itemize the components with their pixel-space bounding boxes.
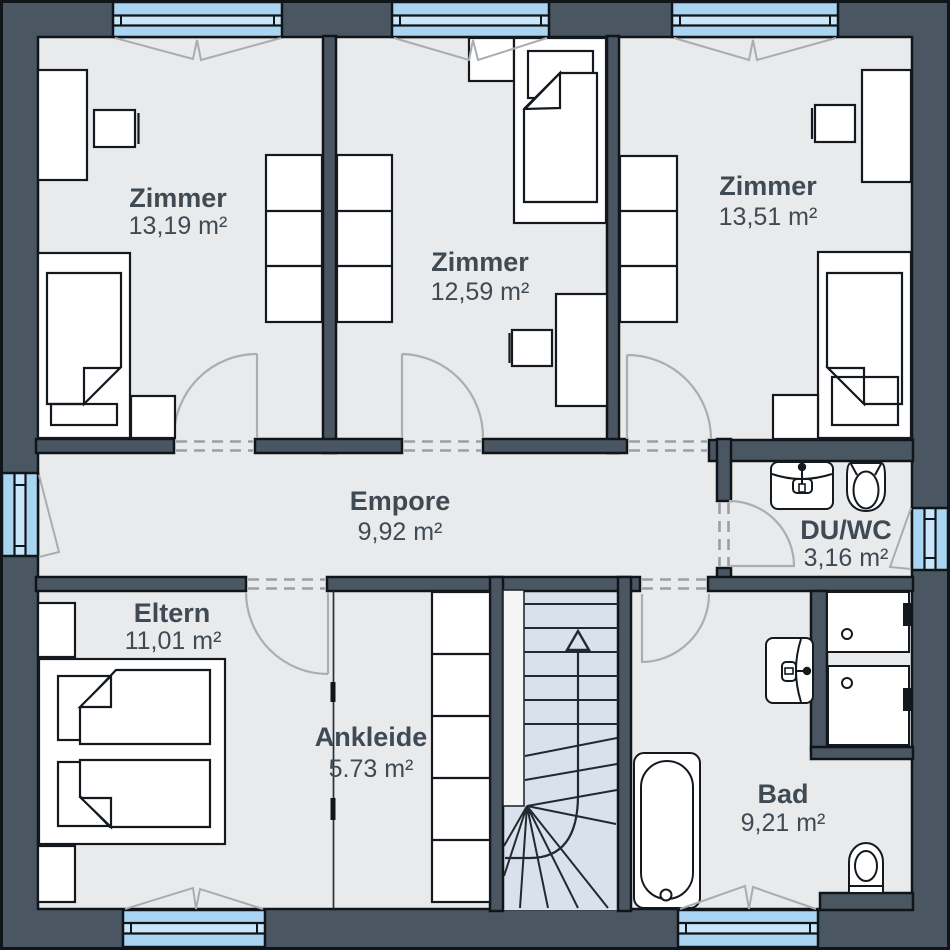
svg-text:13,19 m²: 13,19 m² <box>129 212 228 240</box>
svg-text:3,16 m²: 3,16 m² <box>804 544 889 572</box>
svg-text:Eltern: Eltern <box>134 598 211 628</box>
svg-text:11,01 m²: 11,01 m² <box>125 627 222 655</box>
svg-text:Empore: Empore <box>350 486 451 516</box>
svg-text:12,59 m²: 12,59 m² <box>431 278 530 306</box>
svg-text:Ankleide: Ankleide <box>315 722 428 752</box>
svg-text:13,51 m²: 13,51 m² <box>719 203 818 231</box>
svg-text:Zimmer: Zimmer <box>431 247 529 277</box>
svg-text:Zimmer: Zimmer <box>719 171 817 201</box>
svg-text:Bad: Bad <box>757 779 808 809</box>
svg-text:DU/WC: DU/WC <box>800 515 891 545</box>
svg-text:9,92 m²: 9,92 m² <box>358 518 443 546</box>
svg-text:Zimmer: Zimmer <box>129 183 227 213</box>
svg-text:9,21 m²: 9,21 m² <box>741 809 826 837</box>
svg-text:5.73 m²: 5.73 m² <box>329 755 414 783</box>
